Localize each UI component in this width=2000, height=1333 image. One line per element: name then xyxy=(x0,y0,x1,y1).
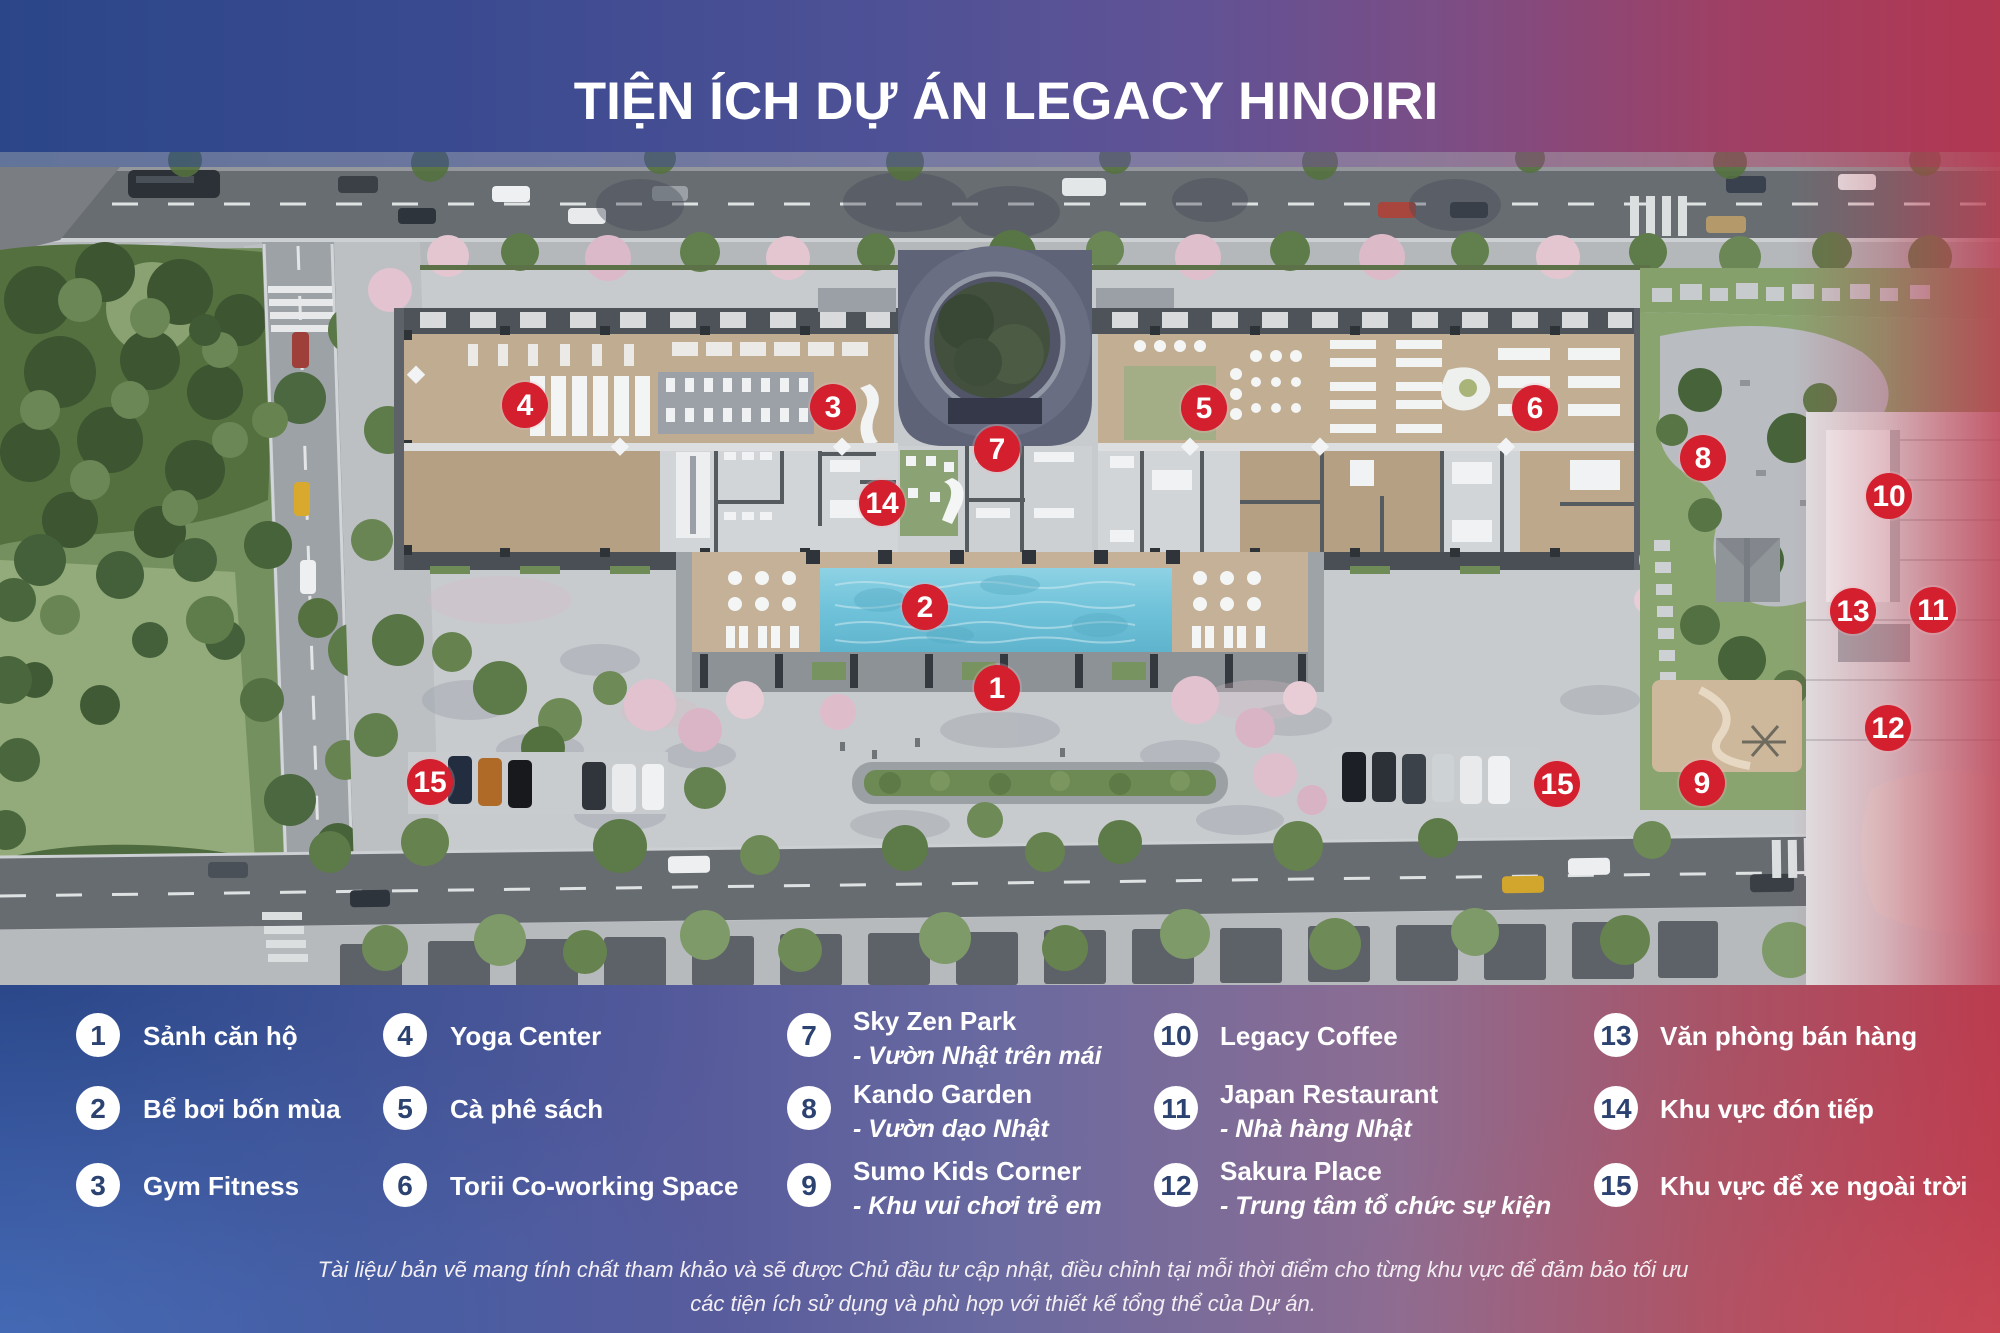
svg-text:- Trung tâm tổ chức sự kiện: - Trung tâm tổ chức sự kiện xyxy=(1220,1192,1551,1220)
svg-text:5: 5 xyxy=(397,1093,413,1124)
svg-text:13: 13 xyxy=(1836,595,1869,628)
svg-text:9: 9 xyxy=(801,1170,817,1201)
svg-text:- Khu vui chơi trẻ em: - Khu vui chơi trẻ em xyxy=(853,1192,1102,1220)
svg-text:3: 3 xyxy=(825,391,842,424)
svg-text:10: 10 xyxy=(1872,480,1905,513)
svg-text:12: 12 xyxy=(1160,1170,1191,1201)
svg-text:4: 4 xyxy=(397,1020,413,1051)
svg-text:Sakura Place: Sakura Place xyxy=(1220,1156,1382,1186)
svg-text:- Vườn dạo Nhật: - Vườn dạo Nhật xyxy=(853,1115,1050,1143)
svg-text:Văn phòng bán hàng: Văn phòng bán hàng xyxy=(1660,1021,1917,1051)
svg-text:6: 6 xyxy=(1527,392,1544,425)
svg-text:Sky Zen Park: Sky Zen Park xyxy=(853,1006,1017,1036)
svg-text:Sảnh căn hộ: Sảnh căn hộ xyxy=(143,1021,298,1051)
svg-text:14: 14 xyxy=(865,487,899,520)
svg-text:Khu vực để xe ngoài trời: Khu vực để xe ngoài trời xyxy=(1660,1171,1967,1201)
svg-text:11: 11 xyxy=(1161,1093,1191,1124)
svg-text:4: 4 xyxy=(517,389,534,422)
svg-text:7: 7 xyxy=(989,433,1006,466)
svg-text:10: 10 xyxy=(1160,1020,1191,1051)
svg-text:11: 11 xyxy=(1917,594,1949,627)
svg-text:9: 9 xyxy=(1694,767,1711,800)
svg-text:15: 15 xyxy=(1600,1170,1631,1201)
svg-text:Legacy Coffee: Legacy Coffee xyxy=(1220,1021,1398,1051)
svg-text:8: 8 xyxy=(1695,442,1712,475)
svg-text:Gym Fitness: Gym Fitness xyxy=(143,1171,299,1201)
svg-text:5: 5 xyxy=(1196,392,1213,425)
svg-text:các tiện ích sử dụng và phù hợ: các tiện ích sử dụng và phù hợp với thiế… xyxy=(690,1291,1316,1316)
svg-text:7: 7 xyxy=(801,1020,817,1051)
svg-text:Torii Co-working Space: Torii Co-working Space xyxy=(450,1171,738,1201)
svg-text:15: 15 xyxy=(1540,768,1573,801)
svg-text:1: 1 xyxy=(90,1020,106,1051)
svg-text:3: 3 xyxy=(90,1170,106,1201)
svg-text:Sumo Kids Corner: Sumo Kids Corner xyxy=(853,1156,1081,1186)
svg-text:Bể bơi bốn mùa: Bể bơi bốn mùa xyxy=(143,1094,341,1124)
svg-text:Khu vực đón tiếp: Khu vực đón tiếp xyxy=(1660,1094,1874,1124)
svg-text:TIỆN ÍCH DỰ ÁN LEGACY HINOIRI: TIỆN ÍCH DỰ ÁN LEGACY HINOIRI xyxy=(574,70,1439,131)
svg-text:6: 6 xyxy=(397,1170,413,1201)
svg-text:8: 8 xyxy=(801,1093,817,1124)
svg-text:Tài liệu/ bản vẽ mang tính chấ: Tài liệu/ bản vẽ mang tính chất tham khả… xyxy=(318,1257,1689,1282)
svg-text:15: 15 xyxy=(413,766,446,799)
svg-text:14: 14 xyxy=(1600,1093,1632,1124)
svg-text:Kando Garden: Kando Garden xyxy=(853,1079,1032,1109)
svg-text:- Vườn Nhật trên mái: - Vườn Nhật trên mái xyxy=(853,1042,1103,1070)
svg-text:2: 2 xyxy=(917,591,934,624)
svg-text:1: 1 xyxy=(989,672,1006,705)
svg-text:2: 2 xyxy=(90,1093,106,1124)
svg-text:Yoga Center: Yoga Center xyxy=(450,1021,601,1051)
svg-text:Japan Restaurant: Japan Restaurant xyxy=(1220,1079,1439,1109)
svg-text:Cà phê sách: Cà phê sách xyxy=(450,1094,603,1124)
svg-text:13: 13 xyxy=(1600,1020,1631,1051)
svg-text:- Nhà hàng Nhật: - Nhà hàng Nhật xyxy=(1220,1115,1413,1143)
svg-text:12: 12 xyxy=(1871,712,1904,745)
